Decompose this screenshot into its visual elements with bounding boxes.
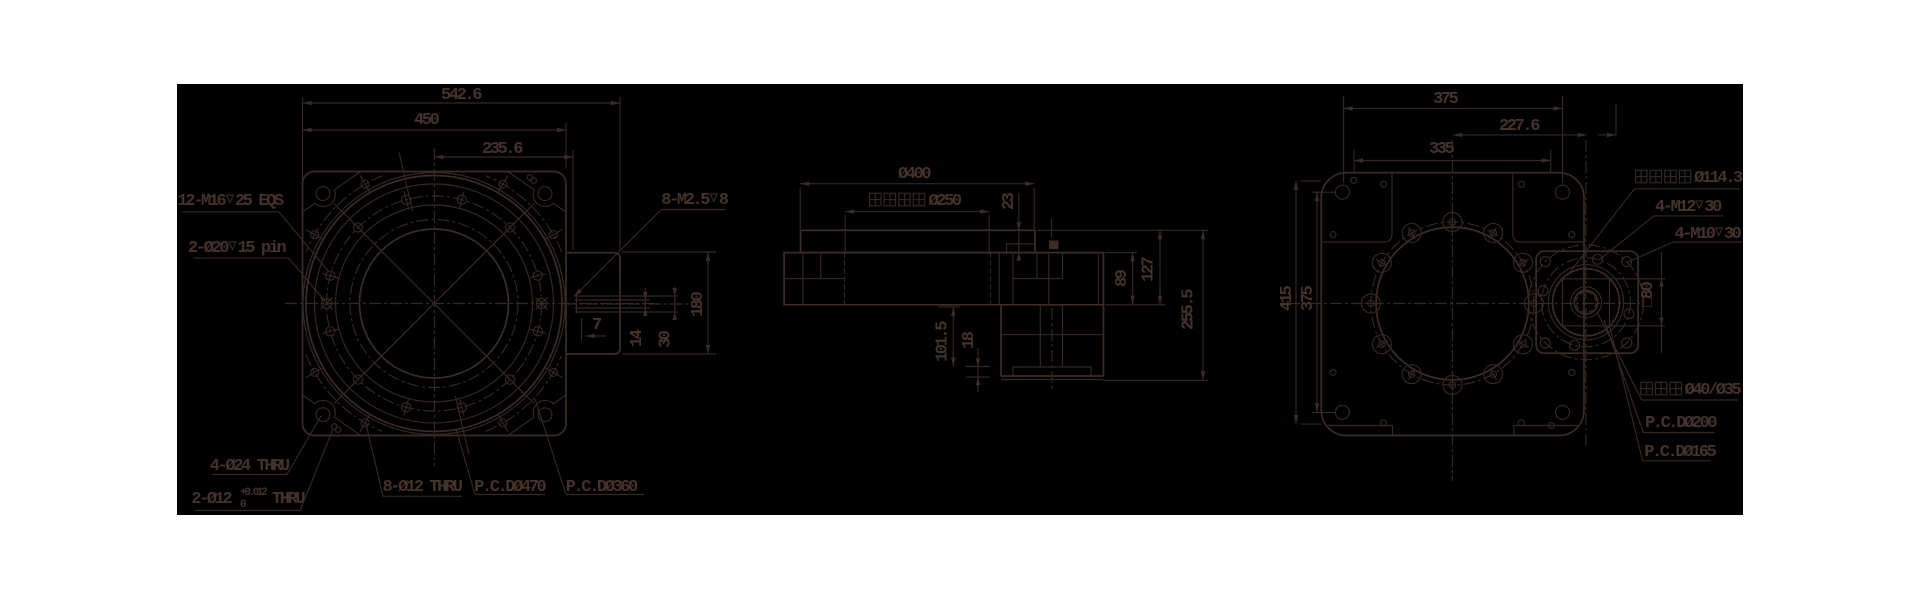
svg-text:127: 127 (1140, 256, 1159, 282)
svg-text:THRU: THRU (272, 490, 305, 509)
svg-text:89: 89 (1113, 269, 1132, 287)
svg-text:12-M16: 12-M16 (178, 192, 227, 211)
svg-text:375: 375 (1299, 285, 1318, 311)
svg-text:255.5: 255.5 (1180, 289, 1199, 330)
svg-text:18: 18 (960, 331, 979, 349)
svg-text:2-Ø20: 2-Ø20 (188, 239, 229, 258)
svg-text:2-Ø12: 2-Ø12 (191, 490, 232, 509)
svg-text:4-M12: 4-M12 (1655, 198, 1696, 217)
svg-text:Ø40/Ø35: Ø40/Ø35 (1685, 381, 1742, 400)
svg-text:P.C.DØ165: P.C.DØ165 (1644, 443, 1716, 462)
svg-text:4-M10: 4-M10 (1675, 225, 1716, 244)
svg-text:23: 23 (1000, 192, 1019, 210)
svg-text:415: 415 (1278, 285, 1297, 311)
svg-text:227.6: 227.6 (1499, 117, 1540, 136)
svg-text:14: 14 (628, 329, 647, 347)
svg-text:542.6: 542.6 (441, 86, 482, 105)
svg-text:8-Ø12 THRU: 8-Ø12 THRU (383, 478, 463, 497)
svg-text:Ø400: Ø400 (898, 165, 931, 184)
svg-text:8-M2.5: 8-M2.5 (661, 191, 710, 210)
svg-text:4-Ø24 THRU: 4-Ø24 THRU (210, 457, 290, 476)
svg-text:30: 30 (657, 330, 676, 348)
svg-text:P.C.DØ200: P.C.DØ200 (1645, 414, 1717, 433)
svg-text:375: 375 (1433, 90, 1459, 109)
svg-text:235.6: 235.6 (482, 140, 523, 159)
svg-text:30: 30 (1704, 198, 1722, 217)
svg-text:101.5: 101.5 (934, 321, 953, 362)
svg-text:450: 450 (414, 111, 440, 130)
svg-text:Ø114.3: Ø114.3 (1694, 169, 1743, 188)
svg-text:335: 335 (1429, 140, 1455, 159)
svg-text:□80: □80 (1639, 281, 1658, 307)
svg-text:30: 30 (1724, 225, 1742, 244)
svg-text:Ø250: Ø250 (929, 192, 962, 211)
svg-text:15 pin: 15 pin (238, 239, 287, 258)
svg-text:180: 180 (689, 291, 708, 317)
svg-text:25 EQS: 25 EQS (235, 192, 284, 211)
svg-text:+0.012: +0.012 (240, 487, 267, 499)
